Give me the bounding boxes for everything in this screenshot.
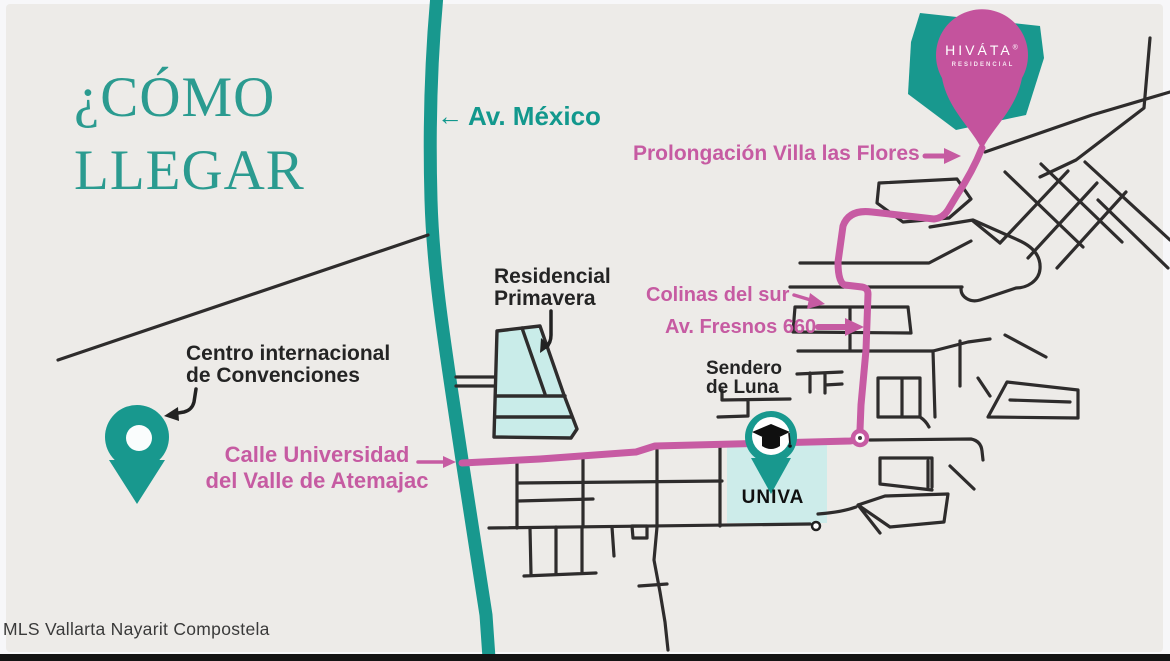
- road-segment: [518, 499, 593, 501]
- road-segment: [800, 241, 971, 263]
- road-segment: [1098, 200, 1168, 268]
- title-line2: LLEGAR: [74, 135, 305, 208]
- road-segment: [797, 372, 842, 393]
- page-title: ¿CÓMO LLEGAR: [74, 62, 305, 208]
- road-segment: [988, 382, 1078, 418]
- sendero-de-luna-label: Sendero de Luna: [706, 359, 782, 397]
- road-segment: [489, 524, 810, 528]
- av-mexico-road: [430, 0, 489, 658]
- bottom-bar: [0, 654, 1170, 661]
- univa-label: UNIVA: [728, 487, 818, 509]
- road-segment: [933, 351, 935, 417]
- av-mexico-label: ← Av. México: [437, 101, 601, 132]
- road-segment: [612, 527, 614, 556]
- registered-mark: ®: [1013, 44, 1021, 51]
- residencial-line2: Primavera: [494, 288, 611, 310]
- sendero-line2: de Luna: [706, 378, 782, 397]
- sendero-line1: Sendero: [706, 359, 782, 378]
- como-llegar-flyer: { "title": { "line1": "¿CÓMO", "line2": …: [0, 0, 1170, 661]
- hivata-logo-text: HIVÁTA: [945, 42, 1013, 58]
- junction-ring: [812, 522, 820, 530]
- residencial-primavera-label: Residencial Primavera: [494, 266, 611, 310]
- road-segment: [978, 378, 990, 396]
- prolongacion-label: Prolongación Villa las Flores: [633, 142, 920, 166]
- calle-line1: Calle Universidad: [198, 442, 436, 468]
- road-segment: [632, 526, 647, 538]
- road-segment: [880, 458, 932, 490]
- av-mexico-text: Av. México: [468, 101, 601, 132]
- centro-arrow-icon: [164, 389, 196, 421]
- primavera-area: [494, 326, 577, 438]
- road-segment: [639, 527, 668, 650]
- road-segment: [518, 481, 722, 483]
- road-segment: [456, 377, 496, 386]
- centro-line2: de Convenciones: [186, 365, 390, 387]
- colinas-del-sur-label: Colinas del sur: [646, 284, 789, 307]
- road-segment: [524, 527, 596, 576]
- hivata-logo: HIVÁTA®: [927, 42, 1039, 58]
- hivata-pin: [936, 9, 1028, 150]
- watermark-text: MLS Vallarta Nayarit Compostela: [3, 619, 270, 640]
- road-segment: [950, 466, 974, 489]
- left-arrow-icon: ←: [437, 101, 463, 132]
- prolongacion-arrow-icon: [925, 148, 961, 164]
- calle-line2: del Valle de Atemajac: [198, 468, 436, 494]
- roundabout-marker: [853, 431, 867, 445]
- road-segment: [1005, 335, 1046, 357]
- road-segment: [1028, 183, 1097, 258]
- road-segment: [878, 378, 929, 427]
- calle-universidad-label: Calle Universidad del Valle de Atemajac: [198, 442, 436, 494]
- residencial-line1: Residencial: [494, 266, 611, 288]
- hivata-logo-subtitle: RESIDENCIAL: [927, 62, 1039, 68]
- centro-line1: Centro internacional: [186, 343, 390, 365]
- road-segment: [858, 494, 948, 533]
- centro-pin: [105, 405, 169, 504]
- centro-convenciones-label: Centro internacional de Convenciones: [186, 343, 390, 387]
- title-line1: ¿CÓMO: [74, 62, 305, 135]
- av-fresnos-label: Av. Fresnos 660: [665, 316, 816, 339]
- road-segment: [1040, 38, 1150, 177]
